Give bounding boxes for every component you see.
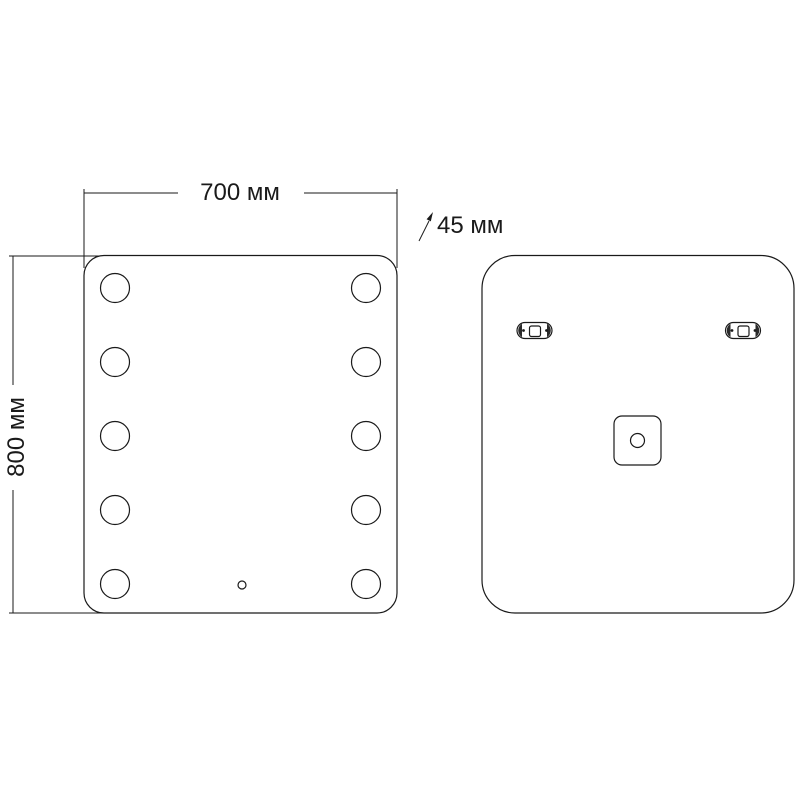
light-bulb-icon	[352, 570, 381, 599]
back-view	[482, 256, 794, 614]
bracket-screw-dot	[522, 329, 525, 332]
height-dimension-label: 800 мм	[3, 397, 30, 477]
junction-box	[614, 416, 661, 465]
cable-hole-icon	[631, 434, 645, 448]
depth-dimension-label: 45 мм	[437, 212, 503, 239]
depth-arrow-head-icon	[427, 212, 433, 221]
touch-sensor-icon	[238, 581, 246, 589]
bracket-keyhole-slot	[738, 326, 749, 337]
light-bulb-icon	[352, 348, 381, 377]
bracket-screw-dot	[754, 329, 757, 332]
light-bulb-icon	[101, 348, 130, 377]
depth-dimension: 45 мм	[419, 212, 503, 241]
technical-drawing-canvas: 700 мм 800 мм 45 мм	[0, 0, 800, 800]
light-bulb-icon	[101, 496, 130, 525]
width-dimension: 700 мм	[84, 179, 397, 268]
width-dimension-label: 700 мм	[200, 179, 280, 206]
bracket-screw-dot	[545, 329, 548, 332]
light-bulb-icon	[352, 274, 381, 303]
bracket-keyhole-slot	[530, 326, 541, 337]
mirror-dimension-diagram: 700 мм 800 мм 45 мм	[0, 0, 800, 800]
mounting-bracket-right	[726, 323, 761, 339]
light-bulb-icon	[101, 570, 130, 599]
front-view	[84, 256, 397, 614]
front-view-mirror-body	[84, 256, 397, 614]
light-bulb-icon	[352, 422, 381, 451]
depth-arrow-shaft	[419, 221, 429, 241]
light-bulb-icon	[352, 496, 381, 525]
bracket-screw-dot	[731, 329, 734, 332]
mounting-bracket-left	[517, 323, 552, 339]
light-bulb-icon	[101, 422, 130, 451]
light-bulb-icon	[101, 274, 130, 303]
